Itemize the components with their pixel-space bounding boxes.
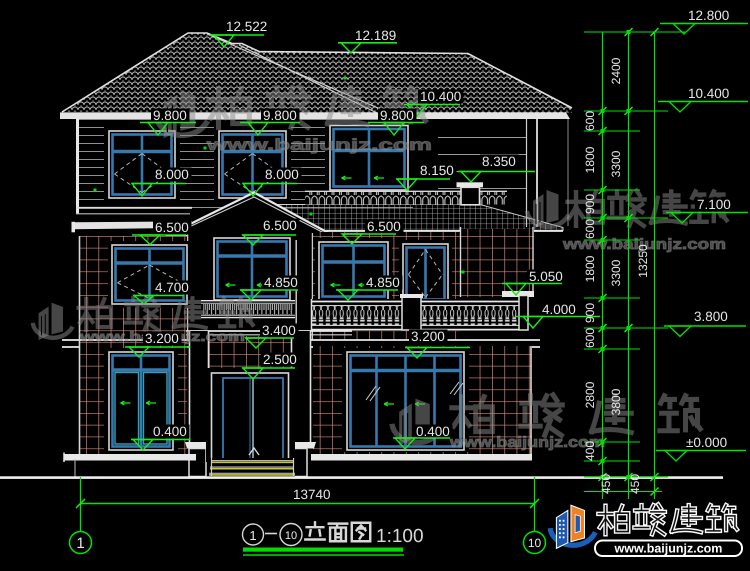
svg-text:10: 10: [285, 530, 297, 542]
svg-text:1:100: 1:100: [376, 526, 424, 547]
svg-text:13740: 13740: [293, 487, 331, 502]
svg-text:900: 900: [583, 303, 597, 323]
svg-text:4.850: 4.850: [366, 275, 400, 290]
svg-text:8.000: 8.000: [265, 167, 299, 182]
svg-text:450: 450: [599, 474, 613, 494]
svg-text:3800: 3800: [609, 388, 623, 415]
svg-text:9.800: 9.800: [263, 108, 297, 123]
svg-text:6.500: 6.500: [367, 219, 401, 234]
svg-text:3.200: 3.200: [145, 331, 179, 346]
svg-text:5.050: 5.050: [529, 269, 563, 284]
svg-text:4.850: 4.850: [264, 275, 298, 290]
svg-text:3300: 3300: [609, 150, 623, 177]
svg-text:±0.000: ±0.000: [686, 435, 727, 450]
svg-text:4.700: 4.700: [155, 280, 189, 295]
svg-text:7.100: 7.100: [697, 197, 731, 212]
svg-text:4.000: 4.000: [542, 302, 576, 317]
svg-text:1800: 1800: [583, 255, 597, 282]
svg-text:10.400: 10.400: [420, 89, 461, 104]
svg-text:2.500: 2.500: [263, 352, 297, 367]
svg-text:600: 600: [583, 111, 597, 131]
svg-text:900: 900: [583, 194, 597, 214]
svg-text:1: 1: [249, 528, 256, 543]
svg-text:600: 600: [583, 328, 597, 348]
svg-text:0.400: 0.400: [416, 424, 450, 439]
svg-text:2800: 2800: [583, 381, 597, 408]
svg-text:9.800: 9.800: [153, 108, 187, 123]
svg-text:8.000: 8.000: [155, 167, 189, 182]
svg-text:13250: 13250: [636, 244, 650, 278]
svg-text:6.500: 6.500: [155, 220, 189, 235]
svg-text:8.350: 8.350: [482, 154, 516, 169]
svg-text:10.400: 10.400: [688, 86, 729, 101]
svg-text:1: 1: [76, 535, 84, 552]
svg-text:www.baijunjz.com: www.baijunjz.com: [205, 137, 432, 154]
svg-text:600: 600: [583, 219, 597, 239]
svg-text:3.800: 3.800: [694, 309, 728, 324]
svg-text:450: 450: [628, 474, 642, 494]
svg-text:6.500: 6.500: [263, 218, 297, 233]
svg-text:12.189: 12.189: [355, 28, 396, 43]
svg-text:3300: 3300: [609, 259, 623, 286]
svg-text:9.800: 9.800: [380, 108, 414, 123]
svg-text:1800: 1800: [583, 146, 597, 173]
svg-text:12.800: 12.800: [688, 8, 729, 23]
svg-text:0.400: 0.400: [153, 424, 187, 439]
svg-text:2400: 2400: [609, 57, 623, 84]
svg-text:10: 10: [528, 536, 542, 550]
svg-text:12.522: 12.522: [226, 19, 267, 34]
svg-text:3.200: 3.200: [411, 329, 445, 344]
svg-text:400: 400: [583, 441, 597, 461]
svg-text:www.baijunjz.com: www.baijunjz.com: [614, 542, 723, 556]
svg-text:3.400: 3.400: [262, 323, 296, 338]
svg-text:www.baijunjz.com: www.baijunjz.com: [449, 434, 605, 451]
svg-text:8.150: 8.150: [420, 163, 454, 178]
